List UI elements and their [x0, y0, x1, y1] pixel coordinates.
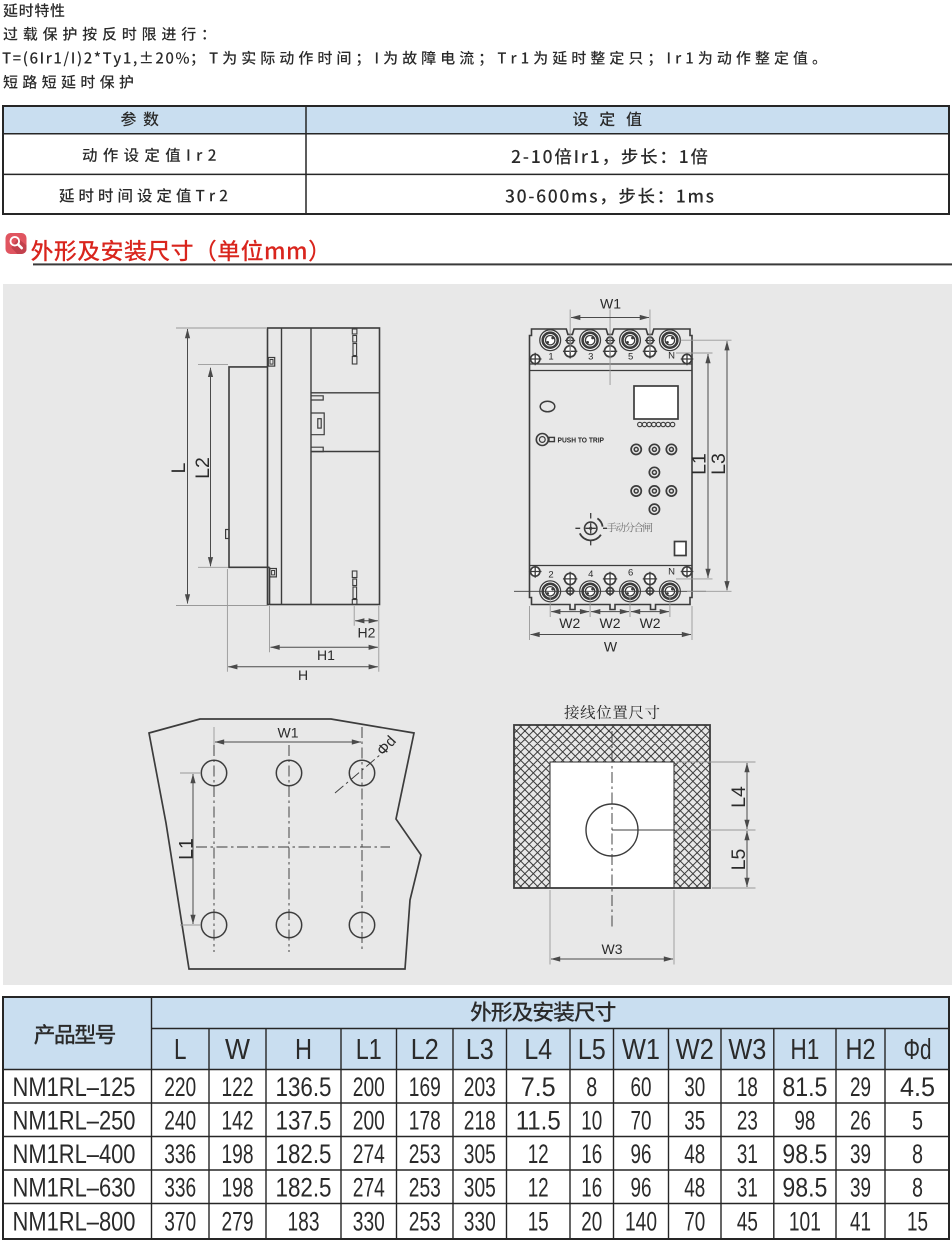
svg-text:H: H	[295, 1034, 312, 1066]
svg-text:L3: L3	[466, 1034, 494, 1066]
svg-text:H1: H1	[790, 1034, 819, 1066]
svg-text:8: 8	[912, 1173, 923, 1203]
svg-text:305: 305	[464, 1139, 496, 1169]
svg-text:137.5: 137.5	[276, 1106, 332, 1136]
svg-text:L4: L4	[728, 786, 750, 808]
svg-text:5: 5	[628, 352, 633, 363]
svg-text:70: 70	[684, 1207, 705, 1237]
svg-text:169: 169	[409, 1072, 441, 1102]
svg-text:N: N	[668, 351, 675, 362]
svg-text:98: 98	[794, 1106, 815, 1136]
svg-text:W3: W3	[728, 1034, 766, 1066]
svg-text:NM1RL–250: NM1RL–250	[13, 1106, 136, 1136]
svg-text:240: 240	[164, 1106, 196, 1136]
svg-text:L5: L5	[578, 1034, 606, 1066]
svg-text:274: 274	[353, 1173, 385, 1203]
svg-text:PUSH TO TRIP: PUSH TO TRIP	[558, 435, 605, 444]
svg-text:W1: W1	[622, 1034, 660, 1066]
svg-text:4.5: 4.5	[900, 1072, 935, 1102]
svg-text:4: 4	[588, 569, 593, 580]
svg-text:81.5: 81.5	[782, 1072, 827, 1102]
svg-text:198: 198	[222, 1173, 254, 1203]
svg-text:N: N	[668, 567, 675, 578]
svg-text:L5: L5	[728, 849, 750, 871]
svg-text:12: 12	[528, 1139, 549, 1169]
svg-text:1: 1	[548, 352, 553, 363]
svg-text:35: 35	[684, 1106, 705, 1136]
svg-text:330: 330	[353, 1207, 385, 1237]
svg-text:W2: W2	[600, 615, 621, 631]
svg-text:48: 48	[684, 1173, 705, 1203]
svg-text:96: 96	[631, 1139, 652, 1169]
svg-text:200: 200	[353, 1072, 385, 1102]
svg-text:NM1RL–630: NM1RL–630	[13, 1173, 136, 1203]
svg-text:279: 279	[222, 1207, 254, 1237]
svg-text:39: 39	[850, 1173, 871, 1203]
svg-text:98.5: 98.5	[782, 1173, 827, 1203]
svg-text:140: 140	[625, 1207, 657, 1237]
svg-text:96: 96	[631, 1173, 652, 1203]
svg-text:L2: L2	[411, 1034, 439, 1066]
svg-text:W2: W2	[640, 615, 661, 631]
svg-text:3: 3	[588, 352, 593, 363]
svg-text:253: 253	[409, 1139, 441, 1169]
svg-text:10: 10	[581, 1106, 602, 1136]
svg-text:H2: H2	[358, 625, 376, 641]
svg-text:H1: H1	[317, 647, 335, 663]
svg-text:200: 200	[353, 1106, 385, 1136]
svg-text:218: 218	[464, 1106, 496, 1136]
svg-text:18: 18	[737, 1072, 758, 1102]
svg-text:Φd: Φd	[904, 1034, 932, 1066]
svg-text:98.5: 98.5	[782, 1139, 827, 1169]
svg-text:253: 253	[409, 1207, 441, 1237]
svg-text:330: 330	[464, 1207, 496, 1237]
svg-text:60: 60	[631, 1072, 652, 1102]
svg-text:370: 370	[164, 1207, 196, 1237]
svg-text:336: 336	[164, 1173, 196, 1203]
svg-text:H2: H2	[846, 1034, 876, 1066]
svg-text:W: W	[225, 1034, 251, 1066]
svg-text:15: 15	[907, 1207, 928, 1237]
svg-text:L1: L1	[356, 1034, 382, 1066]
svg-text:26: 26	[850, 1106, 871, 1136]
svg-text:305: 305	[464, 1173, 496, 1203]
svg-text:182.5: 182.5	[276, 1173, 332, 1203]
svg-text:274: 274	[353, 1139, 385, 1169]
svg-text:2: 2	[548, 570, 553, 581]
svg-text:220: 220	[164, 1072, 196, 1102]
svg-text:30: 30	[684, 1072, 705, 1102]
svg-text:136.5: 136.5	[276, 1072, 332, 1102]
svg-text:20: 20	[581, 1207, 602, 1237]
svg-text:6: 6	[628, 568, 633, 579]
svg-text:31: 31	[737, 1139, 758, 1169]
svg-text:70: 70	[631, 1106, 652, 1136]
svg-text:178: 178	[409, 1106, 441, 1136]
svg-text:L2: L2	[192, 457, 214, 479]
svg-text:203: 203	[464, 1072, 496, 1102]
svg-text:L3: L3	[708, 453, 730, 475]
svg-text:15: 15	[528, 1207, 549, 1237]
svg-text:45: 45	[737, 1207, 758, 1237]
svg-text:336: 336	[164, 1139, 196, 1169]
svg-text:29: 29	[850, 1072, 871, 1102]
svg-text:16: 16	[581, 1173, 602, 1203]
svg-text:W3: W3	[602, 941, 623, 957]
svg-text:NM1RL–125: NM1RL–125	[13, 1072, 136, 1102]
svg-text:H: H	[298, 667, 308, 683]
svg-text:12: 12	[528, 1173, 549, 1203]
svg-text:W2: W2	[559, 615, 580, 631]
svg-text:W1: W1	[600, 296, 621, 312]
svg-text:182.5: 182.5	[276, 1139, 332, 1169]
svg-text:W2: W2	[676, 1034, 714, 1066]
svg-text:L4: L4	[524, 1034, 552, 1066]
svg-text:L: L	[174, 1034, 187, 1066]
svg-text:W1: W1	[278, 725, 299, 741]
svg-text:253: 253	[409, 1173, 441, 1203]
svg-text:11.5: 11.5	[516, 1106, 561, 1136]
svg-text:8: 8	[912, 1139, 923, 1169]
svg-text:198: 198	[222, 1139, 254, 1169]
svg-text:5: 5	[912, 1106, 923, 1136]
svg-text:L1: L1	[176, 838, 198, 860]
svg-text:16: 16	[581, 1139, 602, 1169]
svg-text:L: L	[168, 462, 190, 473]
svg-text:39: 39	[850, 1139, 871, 1169]
svg-text:183: 183	[288, 1207, 320, 1237]
svg-text:8: 8	[586, 1072, 597, 1102]
svg-text:23: 23	[737, 1106, 758, 1136]
svg-text:7.5: 7.5	[521, 1072, 556, 1102]
svg-text:W: W	[604, 639, 618, 655]
svg-text:101: 101	[789, 1207, 821, 1237]
svg-text:NM1RL–400: NM1RL–400	[13, 1139, 136, 1169]
svg-text:41: 41	[850, 1207, 871, 1237]
svg-text:NM1RL–800: NM1RL–800	[13, 1207, 136, 1237]
svg-text:122: 122	[222, 1072, 254, 1102]
svg-text:48: 48	[684, 1139, 705, 1169]
svg-text:31: 31	[737, 1173, 758, 1203]
svg-text:142: 142	[222, 1106, 254, 1136]
